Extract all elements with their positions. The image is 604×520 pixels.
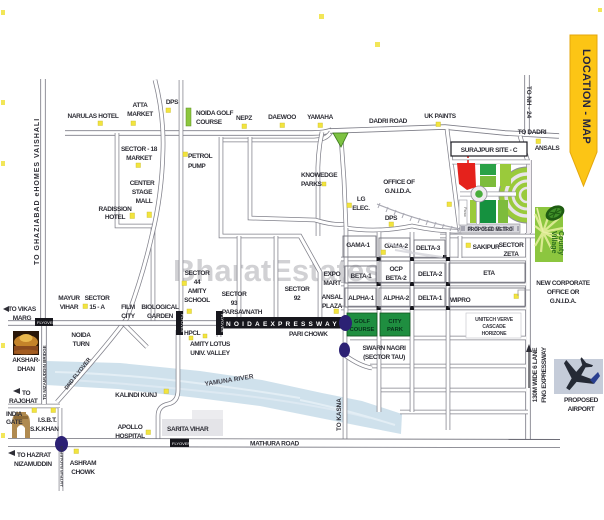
svg-text:CASCADE: CASCADE (482, 324, 506, 330)
svg-text:SCHOOL: SCHOOL (184, 297, 210, 304)
svg-text:OFFICE OR: OFFICE OR (547, 289, 580, 296)
svg-text:TO HAZRAT: TO HAZRAT (17, 452, 51, 459)
svg-text:STAGE: STAGE (132, 189, 153, 196)
svg-text:ALPHA-2: ALPHA-2 (383, 295, 409, 302)
svg-text:TO: TO (22, 390, 31, 397)
svg-text:SURAJPUR SITE - C: SURAJPUR SITE - C (461, 147, 518, 154)
svg-text:FNG EXPRESSWAY: FNG EXPRESSWAY (541, 346, 548, 403)
svg-text:NOIDA: NOIDA (71, 332, 91, 339)
svg-text:BIOLOGICAL: BIOLOGICAL (141, 304, 179, 311)
svg-text:SECTOR: SECTOR (185, 270, 211, 277)
svg-text:ELEC.: ELEC. (352, 205, 370, 212)
svg-text:APOLLO: APOLLO (118, 424, 143, 431)
svg-text:County: County (557, 231, 564, 255)
svg-text:MARKET: MARKET (127, 111, 153, 118)
svg-text:HORIZONE: HORIZONE (482, 331, 508, 337)
svg-text:DELTA-3: DELTA-3 (416, 245, 441, 252)
svg-text:TO NIZAMUDDIN BRIDGE: TO NIZAMUDDIN BRIDGE (42, 345, 47, 400)
svg-text:FILM: FILM (121, 304, 135, 311)
svg-text:TO GHAZIABAD eHOMES VAISHALI: TO GHAZIABAD eHOMES VAISHALI (34, 118, 41, 265)
svg-text:DPS: DPS (166, 99, 179, 106)
svg-text:GARDEN: GARDEN (147, 313, 174, 320)
svg-text:ETA: ETA (483, 270, 495, 277)
svg-text:NOIDAEXPRESSWAY: NOIDAEXPRESSWAY (226, 321, 340, 328)
svg-text:HOSPITAL: HOSPITAL (115, 433, 145, 440)
svg-text:NEW CORPORATE: NEW CORPORATE (536, 280, 590, 287)
svg-text:MALL: MALL (136, 198, 153, 205)
svg-text:CITY: CITY (121, 313, 135, 320)
svg-text:PUMP: PUMP (188, 163, 206, 170)
svg-text:FLYOVER: FLYOVER (172, 441, 190, 446)
svg-text:AIRPORT: AIRPORT (568, 406, 595, 413)
svg-text:ANSALS: ANSALS (535, 145, 561, 152)
svg-text:AMITY: AMITY (188, 288, 207, 295)
svg-text:YAMAHA: YAMAHA (307, 114, 333, 121)
svg-text:COURSE: COURSE (350, 327, 375, 333)
svg-text:NIZAMUDDIN: NIZAMUDDIN (14, 461, 52, 468)
svg-text:SECTOR - 18: SECTOR - 18 (121, 146, 158, 153)
svg-text:Village: Village (550, 231, 557, 254)
svg-text:LOCATION - MAP: LOCATION - MAP (580, 49, 592, 144)
svg-text:MART: MART (323, 280, 341, 287)
svg-text:INDIA: INDIA (6, 411, 23, 418)
svg-text:CENTER: CENTER (130, 180, 155, 187)
svg-text:SECTOR: SECTOR (85, 295, 111, 302)
svg-text:GAMA-1: GAMA-1 (346, 242, 370, 249)
svg-text:KNOWEDGE: KNOWEDGE (301, 172, 338, 179)
svg-text:UNITECH VERVE: UNITECH VERVE (475, 317, 514, 323)
svg-text:(SECTOR TAU): (SECTOR TAU) (363, 354, 405, 361)
svg-text:MARG: MARG (13, 315, 32, 322)
svg-text:TO VIKAS: TO VIKAS (8, 306, 37, 313)
svg-text:ANSAL: ANSAL (322, 294, 343, 301)
svg-text:44: 44 (194, 279, 201, 286)
svg-text:SAKIPUR: SAKIPUR (473, 244, 500, 251)
svg-text:DELTA-2: DELTA-2 (418, 271, 443, 278)
svg-text:RADISSION: RADISSION (99, 206, 133, 213)
svg-text:G.N.I.D.A.: G.N.I.D.A. (550, 298, 577, 305)
svg-text:DPS: DPS (385, 215, 398, 222)
svg-text:ATTA: ATTA (133, 102, 149, 109)
svg-text:TO KASNA: TO KASNA (336, 398, 343, 431)
svg-text:Parao: Parao (463, 207, 467, 216)
svg-text:93: 93 (231, 300, 238, 307)
svg-text:KALINDI KUNJ: KALINDI KUNJ (115, 392, 157, 399)
svg-text:TO DADRI: TO DADRI (518, 129, 547, 136)
svg-text:JAITPUR BADARPUR: JAITPUR BADARPUR (59, 446, 64, 487)
svg-text:AKSHAR-: AKSHAR- (12, 357, 40, 364)
svg-text:TO NH - 24: TO NH - 24 (525, 86, 532, 119)
svg-text:ALPHA-1: ALPHA-1 (348, 295, 374, 302)
svg-text:PROPOSED METRO: PROPOSED METRO (468, 227, 513, 233)
svg-text:ZETA: ZETA (503, 251, 519, 258)
svg-text:SARITA VIHAR: SARITA VIHAR (167, 426, 209, 433)
svg-text:VIHAR: VIHAR (60, 304, 79, 311)
svg-text:PROPOSED: PROPOSED (564, 397, 599, 404)
svg-text:NOIDA GOLF: NOIDA GOLF (196, 110, 233, 117)
svg-text:15 - A: 15 - A (89, 304, 105, 311)
svg-text:ASHRAM: ASHRAM (70, 460, 96, 467)
svg-text:DAEWOO: DAEWOO (268, 114, 296, 121)
svg-text:PETROL: PETROL (188, 153, 213, 160)
svg-text:FLYOVER: FLYOVER (37, 320, 55, 325)
svg-text:NEPZ: NEPZ (236, 115, 252, 122)
svg-text:MARKET: MARKET (126, 155, 152, 162)
svg-text:UNIV. VALLEY: UNIV. VALLEY (190, 350, 231, 357)
svg-text:92: 92 (294, 295, 301, 302)
svg-text:BETA-1: BETA-1 (351, 273, 373, 280)
svg-text:HOTEL: HOTEL (105, 214, 126, 221)
svg-text:BETA-2: BETA-2 (386, 275, 408, 282)
svg-text:I.S.B.T.: I.S.B.T. (38, 417, 57, 424)
svg-text:TURN: TURN (73, 341, 90, 348)
svg-text:COURSE: COURSE (196, 119, 223, 126)
svg-text:SWARN NAGRI: SWARN NAGRI (362, 345, 406, 352)
svg-text:DHAN: DHAN (17, 366, 35, 373)
svg-text:GOLF: GOLF (354, 319, 371, 325)
svg-text:G.N.I.D.A.: G.N.I.D.A. (385, 188, 412, 195)
svg-text:GATE: GATE (6, 419, 23, 426)
svg-text:DELTA-1: DELTA-1 (418, 295, 443, 302)
svg-text:PARKS: PARKS (301, 181, 323, 188)
svg-text:RAJGHAT: RAJGHAT (9, 398, 38, 405)
svg-text:SECTOR: SECTOR (499, 242, 525, 249)
svg-text:MAYUR: MAYUR (58, 295, 80, 302)
svg-text:130M WIDE 6 LANE: 130M WIDE 6 LANE (532, 347, 539, 402)
svg-text:PARSAVNATH: PARSAVNATH (222, 309, 263, 316)
svg-text:CHOWK: CHOWK (71, 469, 95, 476)
svg-text:OFFICE OF: OFFICE OF (383, 179, 415, 186)
svg-text:OCP: OCP (389, 266, 403, 273)
svg-text:LG: LG (357, 196, 366, 203)
svg-text:S.K.KHAN: S.K.KHAN (30, 426, 59, 433)
svg-text:SECTOR: SECTOR (285, 286, 311, 293)
svg-text:UK PAINTS: UK PAINTS (424, 113, 456, 120)
svg-text:SECTOR: SECTOR (222, 291, 248, 298)
svg-text:MATHURA ROAD: MATHURA ROAD (250, 441, 300, 448)
svg-text:NARULAS HOTEL: NARULAS HOTEL (67, 113, 118, 120)
svg-text:PARK: PARK (387, 327, 404, 333)
svg-text:FLYOVER: FLYOVER (220, 314, 225, 332)
svg-text:EXPO: EXPO (324, 271, 341, 278)
svg-text:WIPRO: WIPRO (450, 297, 471, 304)
svg-text:DADRI ROAD: DADRI ROAD (369, 118, 408, 125)
svg-text:PLAZA: PLAZA (322, 303, 343, 310)
svg-text:CITY: CITY (388, 319, 401, 325)
svg-text:PARI CHOWK: PARI CHOWK (289, 331, 328, 338)
svg-text:AMITY LOTUS: AMITY LOTUS (190, 341, 231, 348)
